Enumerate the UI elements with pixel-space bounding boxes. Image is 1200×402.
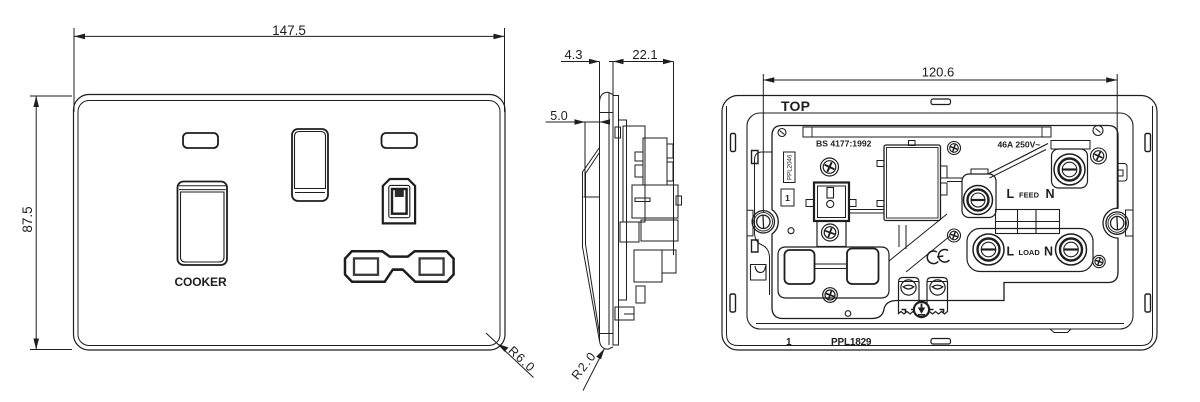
svg-text:87.5: 87.5 — [20, 206, 35, 232]
svg-text:1: 1 — [785, 193, 790, 203]
svg-text:L: L — [1007, 245, 1015, 259]
svg-text:1: 1 — [786, 337, 792, 348]
svg-text:TOP: TOP — [781, 98, 810, 114]
svg-text:22.1: 22.1 — [632, 47, 657, 62]
svg-text:LOAD: LOAD — [1019, 248, 1041, 257]
svg-text:46A 250V~: 46A 250V~ — [998, 140, 1041, 150]
svg-text:L: L — [1007, 187, 1015, 201]
svg-text:147.5: 147.5 — [272, 23, 306, 38]
svg-text:FEED: FEED — [1019, 190, 1040, 199]
svg-text:5.0: 5.0 — [550, 109, 567, 123]
svg-text:120.6: 120.6 — [922, 65, 955, 80]
svg-text:PPL1829: PPL1829 — [831, 337, 872, 348]
svg-text:BS 4177:1992: BS 4177:1992 — [816, 139, 872, 149]
svg-text:COOKER: COOKER — [174, 275, 227, 289]
svg-text:N: N — [1046, 187, 1055, 201]
svg-text:R6.0: R6.0 — [505, 343, 538, 375]
svg-text:R2.0: R2.0 — [569, 349, 599, 383]
svg-text:N: N — [1044, 245, 1053, 259]
svg-text:PPL2046: PPL2046 — [787, 154, 794, 180]
svg-text:4.3: 4.3 — [564, 47, 582, 62]
